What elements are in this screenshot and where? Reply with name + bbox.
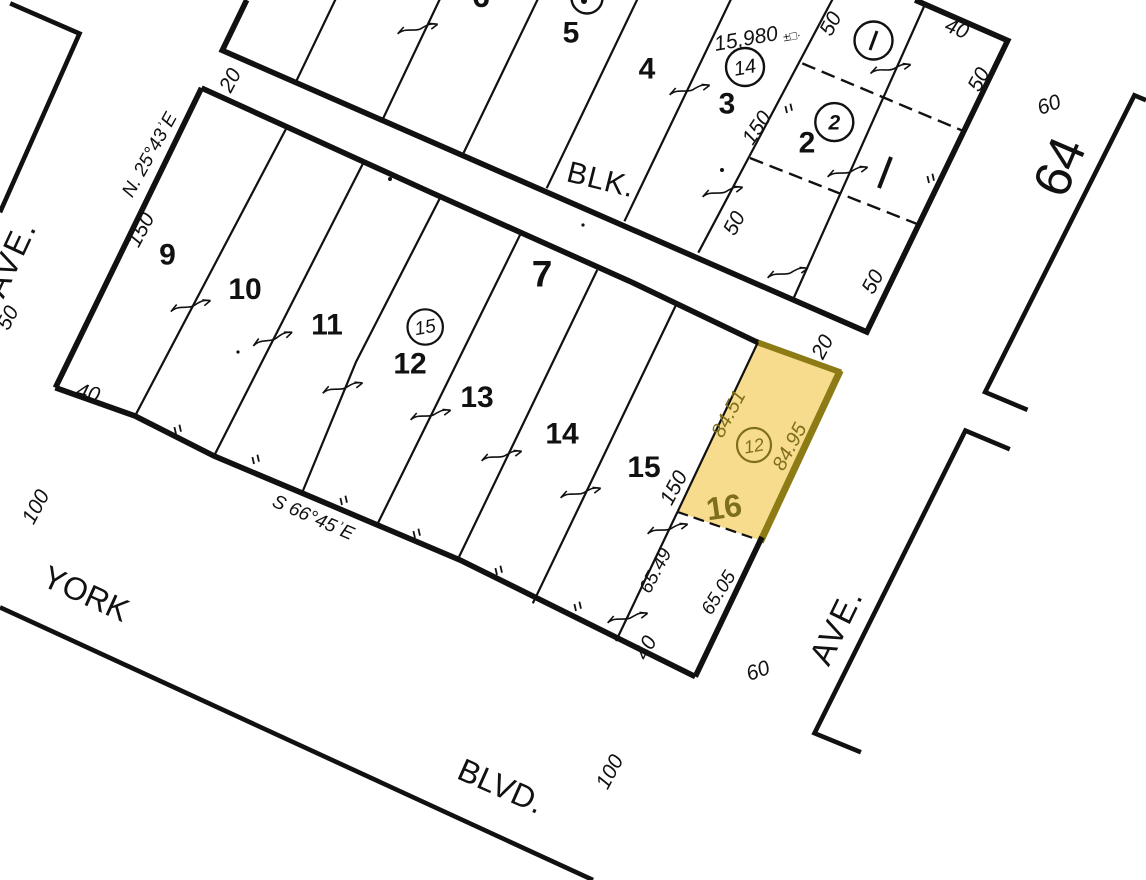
svg-text:5: 5 xyxy=(563,17,580,50)
svg-text:13: 13 xyxy=(460,381,493,414)
svg-text:11: 11 xyxy=(311,309,343,342)
svg-text:3: 3 xyxy=(719,88,736,121)
svg-text:9: 9 xyxy=(159,239,176,272)
svg-text:4: 4 xyxy=(639,53,656,86)
svg-text:2: 2 xyxy=(827,112,840,135)
svg-text:16: 16 xyxy=(704,487,744,528)
svg-text:7: 7 xyxy=(532,254,553,295)
svg-text:15: 15 xyxy=(627,451,660,484)
svg-text:14: 14 xyxy=(732,55,758,81)
svg-text:2: 2 xyxy=(799,127,816,160)
svg-text:12: 12 xyxy=(393,348,426,381)
svg-text:12: 12 xyxy=(742,434,765,457)
svg-text:15: 15 xyxy=(413,316,438,340)
svg-text:6: 6 xyxy=(472,0,490,14)
svg-text:14: 14 xyxy=(545,418,579,451)
svg-text:10: 10 xyxy=(228,273,261,306)
